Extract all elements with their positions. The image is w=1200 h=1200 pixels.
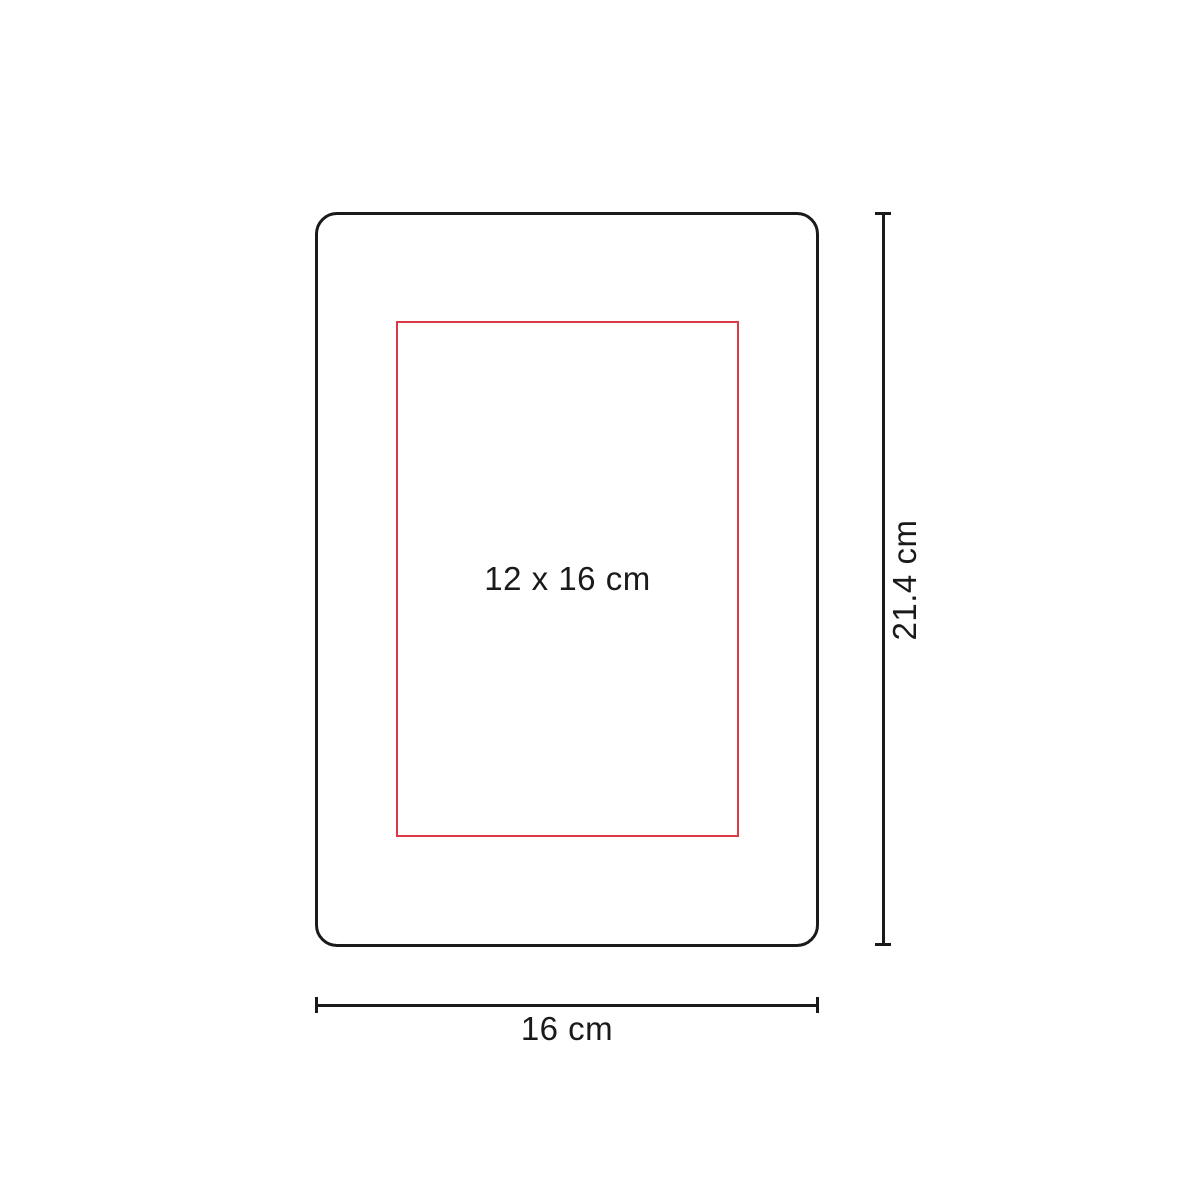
dimension-diagram: 12 x 16 cm 21.4 cm 16 cm (0, 0, 1200, 1200)
height-dimension-tick-top (875, 212, 891, 215)
height-dimension-line (882, 212, 885, 946)
width-dimension-tick-right (816, 997, 819, 1013)
width-dimension: 16 cm (315, 997, 819, 1013)
height-dimension: 21.4 cm (875, 212, 891, 946)
height-dimension-tick-bottom (875, 943, 891, 946)
print-area-label: 12 x 16 cm (484, 560, 650, 598)
height-dimension-label: 21.4 cm (886, 520, 924, 641)
width-dimension-label: 16 cm (521, 1010, 613, 1048)
width-dimension-tick-left (315, 997, 318, 1013)
print-area: 12 x 16 cm (396, 321, 739, 837)
width-dimension-line (315, 1004, 819, 1007)
